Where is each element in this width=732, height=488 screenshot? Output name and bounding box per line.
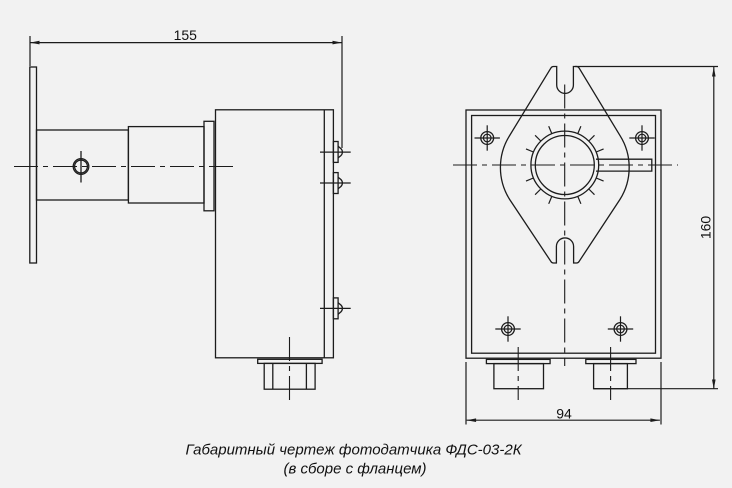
svg-text:(в сборе с фланцем): (в сборе с фланцем)	[283, 461, 426, 478]
svg-text:Габаритный чертеж фотодатчика: Габаритный чертеж фотодатчика ФДС-03-2К	[185, 442, 522, 459]
svg-text:94: 94	[556, 406, 572, 422]
svg-text:155: 155	[174, 27, 198, 43]
svg-text:160: 160	[698, 216, 714, 240]
